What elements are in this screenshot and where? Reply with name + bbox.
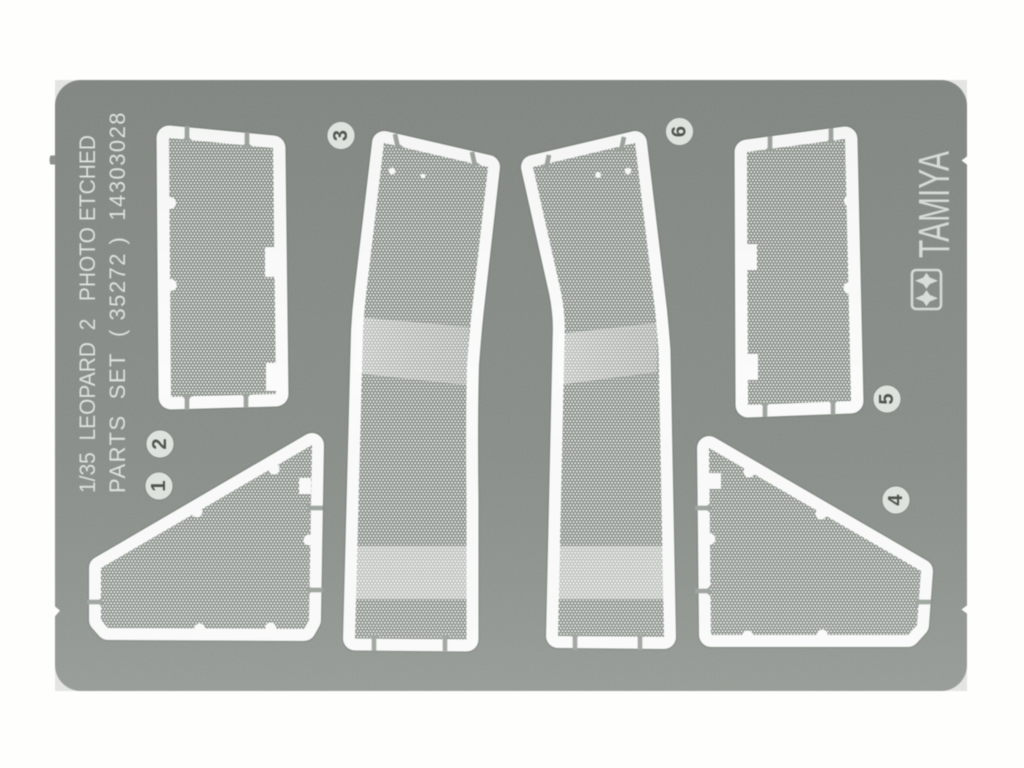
svg-text:2: 2 [149,438,171,449]
svg-text:TAMIYA: TAMIYA [910,151,959,258]
svg-text:5: 5 [876,393,898,404]
svg-text:6: 6 [669,126,691,137]
svg-text:PARTS SET ( 35272 ) 1430302: PARTS SET ( 35272 ) 14303028 [105,111,130,493]
svg-text:4: 4 [885,494,907,506]
svg-text:1: 1 [148,480,170,491]
svg-text:3: 3 [330,130,352,141]
svg-text:1/35 LEOPARD 2 PHOTO ETCHE: 1/35 LEOPARD 2 PHOTO ETCHED [75,135,100,493]
